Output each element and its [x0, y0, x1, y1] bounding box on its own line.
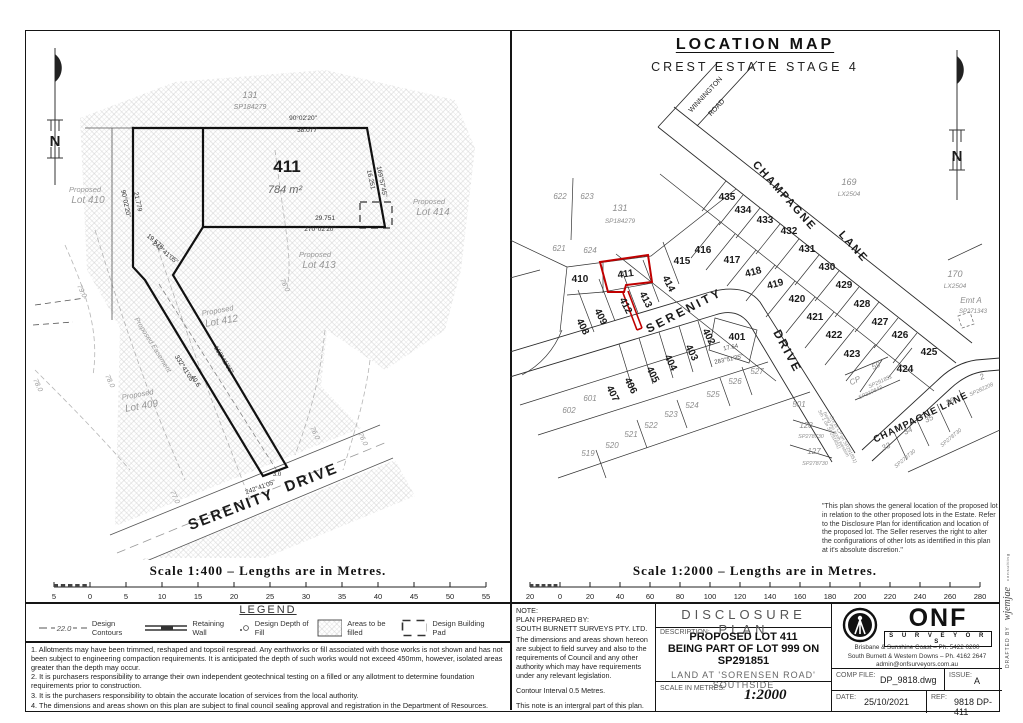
surveyor-logo-cell: ONF S U R V E Y O R S Brisbane & Sunshin… [832, 602, 1002, 668]
plan-label: 520 [605, 441, 619, 450]
plan-label: 523 [664, 410, 678, 419]
scale-tick-label: 20 [586, 592, 594, 601]
plan-label: SP282208 [969, 382, 996, 399]
plan-label: LANE [836, 229, 870, 265]
address-line-2: South Burnett & Western Downs – Ph. 4162… [834, 653, 1000, 662]
plan-label: 401 [729, 332, 746, 343]
onf-logo-emblem [842, 607, 878, 648]
plan-label: 425 [921, 347, 938, 358]
map-labels: NWINNINGTONROADCHAMPAGNELANESERENITYDRIV… [552, 76, 995, 470]
plan-label: LX2504 [838, 191, 861, 198]
plan-label: 525 [706, 390, 720, 399]
legend-item-contours: 22.0 Design Contours [39, 619, 145, 637]
legend-label: Design Building Pad [432, 619, 497, 637]
comp-file-value: DP_9818.dwg [880, 675, 937, 685]
plan-label: 526 [728, 377, 742, 386]
legend-title: LEGEND [25, 604, 511, 616]
plan-label: LX2504 [944, 283, 967, 290]
note-box: NOTE: PLAN PREPARED BY: SOUTH BURNETT SU… [511, 603, 663, 716]
plan-label: SP278730 [802, 461, 829, 467]
plan-label: 408 [574, 317, 592, 337]
drafted-by-name: wjemjae [1002, 587, 1013, 620]
building-pad-symbol [401, 619, 428, 637]
scale-tick-label: 280 [974, 592, 987, 601]
note-box-heading: NOTE: [516, 606, 658, 615]
scale-tick-label: 30 [302, 592, 310, 601]
plan-label: 413 [637, 290, 655, 310]
map-subtitle: CREST ESTATE STAGE 4 [510, 60, 1000, 74]
plan-label: 402 [700, 327, 718, 347]
address-line-1: Brisbane & Sunshine Coast – Ph. 5422 020… [834, 644, 1000, 653]
right-scale-title: Scale 1:2000 – Lengths are in Metres. [512, 563, 998, 579]
plan-label: 624 [583, 246, 597, 255]
plan-label: 501 [792, 400, 805, 409]
plan-label: 169 [841, 177, 856, 187]
scale-tick-label: 180 [824, 592, 837, 601]
lot-411-detail-plan: N131SP18427990°02'20"38.077411784 m²29.7… [25, 30, 510, 560]
legend-item-building-pad: Design Building Pad [401, 619, 497, 637]
comp-file-label: COMP FILE: [836, 672, 876, 679]
fill-areas-hatch [80, 70, 475, 560]
plan-label: 527 [750, 367, 764, 376]
map-disclaimer: "This plan shows the general location of… [822, 503, 998, 556]
scale-tick-label: 55 [482, 592, 490, 601]
plan-label: 415 [674, 256, 691, 267]
plan-label: 429 [836, 280, 853, 291]
plan-label: 131 [242, 90, 257, 100]
plan-label: 38.077 [297, 127, 317, 134]
legend: LEGEND 22.0 Design Contours Retaining Wa… [25, 604, 511, 637]
left-scale-bar: 50510152025303540455055 [40, 579, 510, 603]
scale-label: SCALE IN METRES: [660, 685, 725, 692]
legend-label: Areas to be filled [347, 619, 400, 637]
plan-label: 521 [624, 430, 637, 439]
scale-tick-label: 5 [124, 592, 128, 601]
scale-tick-label: 160 [794, 592, 807, 601]
plan-label: 131 [612, 203, 627, 213]
note-box-body: The dimensions and areas shown hereon ar… [516, 635, 658, 680]
description-line2: BEING PART OF LOT 999 ON SP291851 [656, 643, 831, 667]
scale-tick-label: 200 [854, 592, 867, 601]
plan-label: 417 [724, 255, 741, 266]
scale-tick-label: 5 [52, 592, 56, 601]
date-ref-row: DATE: 25/10/2021 REF: 9818 DP-411 [832, 690, 1002, 713]
plan-label: 90°02'20" [289, 114, 318, 122]
contours-symbol: 22.0 [39, 623, 87, 633]
plan-label: SP184279 [605, 218, 636, 225]
drafted-by-sub: consulting [1005, 553, 1010, 581]
plan-label: 519 [581, 449, 595, 458]
plan-label: 128 [799, 421, 813, 430]
issue-value: A [974, 676, 980, 686]
plan-label: 170 [947, 269, 962, 279]
plan-label: 283°51'35" [714, 354, 744, 366]
plan-label: 78.0 [31, 378, 43, 393]
surveyor-emblem-icon [842, 607, 878, 643]
legend-item-depth-of-fill: Design Depth of Fill [238, 619, 317, 637]
plan-label: 411 [273, 157, 300, 176]
note-box-prepared-by: SOUTH BURNETT SURVEYS PTY. LTD. [516, 624, 658, 633]
map-title: LOCATION MAP [510, 36, 1000, 54]
plan-label: 421 [807, 312, 824, 323]
plan-label: 420 [789, 294, 806, 305]
plan-label: 407 [604, 384, 622, 404]
note-3: 3. It is the purchasers responsibility t… [31, 692, 515, 701]
plan-label: 406 [622, 376, 640, 396]
right-scale-bar: 2002040608010012014016018020022024026028… [516, 579, 996, 603]
scale-tick-label: 260 [944, 592, 957, 601]
plan-label: N [952, 148, 963, 165]
plan-label: 621 [552, 244, 565, 253]
scale-tick-label: 20 [526, 592, 534, 601]
comp-file-row: COMP FILE: DP_9818.dwg ISSUE: A [832, 668, 1002, 691]
drafted-by-label: DRAFTED BY [1005, 626, 1011, 668]
plan-label: 419 [766, 277, 785, 292]
plan-label: 433 [757, 215, 774, 226]
plan-label: 78.0 [103, 374, 115, 389]
note-box-integral: This note is an intergral part of this p… [516, 701, 658, 710]
land-at: LAND AT 'SORENSEN ROAD' [656, 670, 831, 680]
plan-label: 424 [897, 364, 914, 375]
plan-label: 431 [799, 244, 816, 255]
plan-label: 409 [592, 307, 610, 327]
plan-label: SP271343 [959, 309, 988, 315]
plan-label: 422 [826, 330, 843, 341]
plan-label: 601 [583, 394, 596, 403]
plan-label: Lot 413 [302, 260, 336, 271]
title-block-right-column: ONF S U R V E Y O R S Brisbane & Sunshin… [831, 602, 1002, 712]
plan-label: SP278730 [940, 427, 964, 449]
description-label: DESCRIPTION: [660, 629, 710, 636]
scale-tick-label: 100 [704, 592, 717, 601]
disclosure-plan-sheet: N131SP18427990°02'20"38.077411784 m²29.7… [0, 0, 1023, 723]
plan-label: 410 [572, 274, 589, 285]
description-cell: DESCRIPTION: PROPOSED LOT 411 BEING PART… [656, 627, 831, 682]
plan-label: 29.751 [315, 215, 335, 222]
plan-label: 127 [807, 447, 821, 456]
scale-tick-label: 25 [266, 592, 274, 601]
plan-label: Proposed [69, 185, 102, 194]
plan-label: 428 [854, 299, 871, 310]
scale-tick-label: 10 [158, 592, 166, 601]
legend-item-fill-areas: Areas to be filled [317, 619, 400, 637]
plan-label: 414 [660, 274, 678, 294]
plan-label: 411 [617, 268, 635, 281]
plan-label: 602 [562, 406, 576, 415]
scale-tick-label: 15 [194, 592, 202, 601]
scale-tick-label: 20 [230, 592, 238, 601]
plan-label: 430 [819, 262, 836, 273]
plan-label: 524 [685, 401, 699, 410]
plan-label: 17.64 [723, 343, 740, 352]
svg-text:22.0: 22.0 [56, 624, 72, 633]
legend-label: Design Depth of Fill [255, 619, 318, 637]
plan-label: 623 [580, 192, 594, 201]
north-arrow [47, 48, 63, 185]
plan-label: Lot 410 [71, 195, 105, 206]
legend-label: Design Contours [92, 619, 145, 637]
plan-label: SP278730 [798, 434, 825, 440]
plan-label: 435 [719, 192, 736, 203]
note-2: 2. It is purchasers responsibility to ar… [31, 673, 515, 691]
comp-issue-divider [944, 669, 945, 691]
plan-label: 622 [553, 192, 567, 201]
note-box-contour-interval: Contour Interval 0.5 Metres. [516, 686, 658, 695]
plan-label: 434 [735, 205, 752, 216]
scale-tick-label: 45 [410, 592, 418, 601]
scale-tick-label: 120 [734, 592, 747, 601]
plan-label: 2 [977, 371, 986, 382]
title-block-header-cell: DISCLOSURE PLAN [656, 602, 831, 628]
issue-label: ISSUE: [949, 672, 972, 679]
note-1: 1. Allotments may have been trimmed, res… [31, 646, 515, 672]
title-block: DISCLOSURE PLAN DESCRIPTION: PROPOSED LO… [655, 602, 1001, 712]
scale-tick-label: 60 [646, 592, 654, 601]
date-ref-divider [926, 691, 927, 713]
plan-label: 423 [844, 349, 861, 360]
scale-tick-label: 0 [88, 592, 92, 601]
retaining-wall-symbol [145, 623, 187, 633]
plan-label: 432 [781, 226, 798, 237]
plan-label: 418 [744, 265, 763, 280]
scale-cell: SCALE IN METRES: 1:2000 [656, 681, 831, 712]
drafted-by: DRAFTED BY wjemjae consulting [1002, 518, 1013, 668]
plan-label: 59 [870, 360, 882, 372]
scale-value: 1:2000 [744, 687, 787, 704]
scale-tick-label: 50 [446, 592, 454, 601]
plan-label: Emt A [960, 296, 981, 305]
plan-label: SP278730 [894, 448, 918, 470]
plan-label: Proposed [299, 250, 332, 259]
scale-tick-label: 240 [914, 592, 927, 601]
plan-label: 76.0 [356, 432, 368, 447]
depth-of-fill-symbol [238, 623, 249, 633]
plan-label: 3.0 [273, 472, 282, 478]
legend-label: Retaining Wall [192, 619, 238, 637]
plan-label: Lot 414 [416, 207, 450, 218]
plan-label: 405 [644, 365, 662, 385]
ref-label: REF: [931, 694, 947, 701]
scale-tick-label: 35 [338, 592, 346, 601]
legend-item-retaining-wall: Retaining Wall [145, 619, 238, 637]
left-scale-title: Scale 1:400 – Lengths are in Metres. [25, 563, 511, 579]
date-label: DATE: [836, 694, 856, 701]
plan-label: 427 [872, 317, 889, 328]
plan-label: 416 [695, 245, 712, 256]
plan-label: N [50, 133, 61, 150]
plan-notes: 1. Allotments may have been trimmed, res… [25, 643, 521, 714]
date-value: 25/10/2021 [864, 697, 909, 707]
plan-label: SP184279 [234, 104, 267, 111]
onf-logo-text: ONF [884, 606, 992, 631]
note-box-prepared-label: PLAN PREPARED BY: [516, 615, 658, 624]
ref-value: 9818 DP-411 [954, 697, 1002, 717]
scale-tick-label: 40 [616, 592, 624, 601]
plan-label: 522 [644, 421, 658, 430]
plan-label: 270°02'20" [304, 225, 336, 233]
scale-tick-label: 0 [558, 592, 562, 601]
scale-tick-label: 80 [676, 592, 684, 601]
scale-tick-label: 140 [764, 592, 777, 601]
scale-tick-label: 220 [884, 592, 897, 601]
fill-areas-symbol [317, 619, 342, 637]
plan-label: Proposed [413, 197, 446, 206]
scale-tick-label: 40 [374, 592, 382, 601]
plan-label: 784 m² [268, 184, 303, 196]
plan-label: 426 [892, 330, 909, 341]
plan-label: 79.0 [75, 284, 87, 299]
note-4: 4. The dimensions and areas shown on thi… [31, 702, 515, 711]
plan-label: 403 [683, 343, 701, 363]
plan-label: ROAD [707, 98, 726, 118]
